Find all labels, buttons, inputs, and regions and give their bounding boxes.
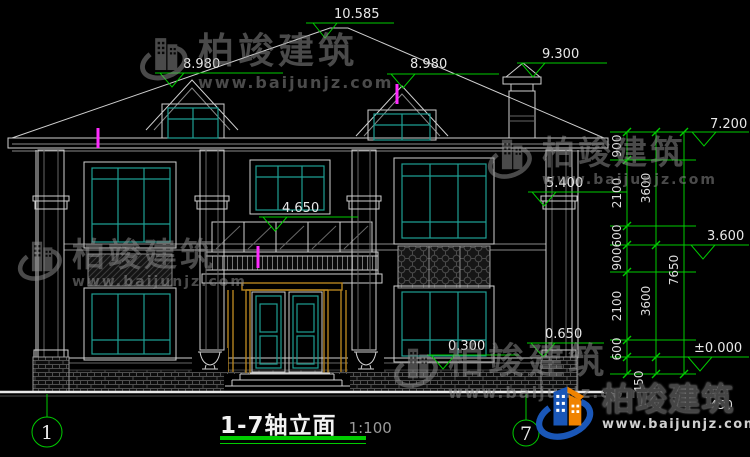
axis-label-7: 7 — [520, 423, 532, 445]
level-value-ridge: 10.585 — [334, 7, 380, 22]
dim-900-a: 900 — [610, 135, 624, 158]
dim-3600-b: 3600 — [639, 286, 653, 317]
level-value-eave-right: 7.200 — [710, 117, 747, 132]
drawing-title-block: 1-7轴立面1:100 — [220, 406, 392, 440]
dim-600-a: 600 — [610, 225, 624, 248]
balcony-slab — [202, 274, 382, 283]
level-value-window-sill: 0.300 — [448, 339, 485, 354]
pilaster-corner-left — [33, 150, 69, 392]
level-markers: 10.585 8.980 8.980 9.300 7.200 5.400 4.6… — [155, 7, 749, 371]
dim-600-b: 600 — [610, 338, 624, 361]
lattice-panels-right — [398, 246, 490, 288]
level-marker-second-floor: 3.600 — [658, 229, 749, 259]
dim-2100-b: 2100 — [610, 291, 624, 322]
level-marker-chimney: 9.300 — [517, 47, 607, 77]
level-marker-ridge: 10.585 — [306, 7, 394, 38]
pedestal-left — [33, 357, 69, 392]
brand-logo-name: 柏竣建筑 — [602, 383, 750, 415]
level-value-dormer-right: 8.980 — [410, 57, 447, 72]
dormer-right — [356, 86, 448, 140]
window-2f-right — [394, 158, 494, 244]
balcony — [202, 222, 382, 283]
level-value-dormer-left: 8.980 — [183, 57, 220, 72]
level-marker-dormer-left: 8.980 — [155, 57, 283, 87]
axis-label-1: 1 — [41, 422, 53, 444]
level-marker-window-sill: 0.300 — [427, 339, 519, 369]
dim-2100-a: 2100 — [610, 178, 624, 209]
entrance-steps — [224, 374, 350, 392]
title-underline-thin — [220, 443, 366, 444]
porch-beam — [242, 283, 342, 290]
brand-logo-icon — [534, 383, 598, 443]
brand-logo: 柏竣建筑 www.baijunjz.com — [534, 383, 750, 443]
level-value-chimney: 9.300 — [542, 47, 579, 62]
level-marker-ground-zero: ±0.000 — [656, 341, 749, 371]
title-underline-thick — [220, 436, 366, 440]
ground-line — [0, 392, 614, 396]
axis-bubble-1: 1 — [32, 394, 62, 447]
window-1f-left — [84, 288, 176, 360]
elevation-drawing-canvas: 10.585 8.980 8.980 9.300 7.200 5.400 4.6… — [0, 0, 750, 457]
entrance-porch — [224, 283, 350, 392]
level-value-plinth-right: 0.650 — [545, 327, 582, 342]
level-value-second-floor: 3.600 — [707, 229, 744, 244]
dim-900-b: 900 — [610, 248, 624, 271]
entrance-double-door — [250, 292, 330, 373]
level-value-ground-zero: ±0.000 — [694, 341, 742, 356]
planter-vase-left — [192, 348, 228, 372]
level-value-balcony-top: 4.650 — [282, 201, 319, 216]
dim-7650: 7650 — [667, 255, 681, 286]
level-value-porch-eave: 5.400 — [546, 176, 583, 191]
planter-vase-right — [348, 348, 384, 372]
dimension-chain: 900 2100 600 900 2100 600 450 3600 3600 … — [610, 128, 696, 393]
drawing-scale: 1:100 — [349, 419, 392, 437]
spandrel-panel-left — [88, 254, 172, 286]
dimension-labels: 900 2100 600 900 2100 600 450 3600 3600 … — [610, 135, 681, 394]
dormer-left — [146, 80, 238, 138]
brand-logo-url: www.baijunjz.com — [602, 417, 750, 432]
window-2f-left — [84, 162, 176, 248]
level-marker-dormer-right: 8.980 — [387, 57, 499, 88]
dim-3600-a: 3600 — [639, 173, 653, 204]
